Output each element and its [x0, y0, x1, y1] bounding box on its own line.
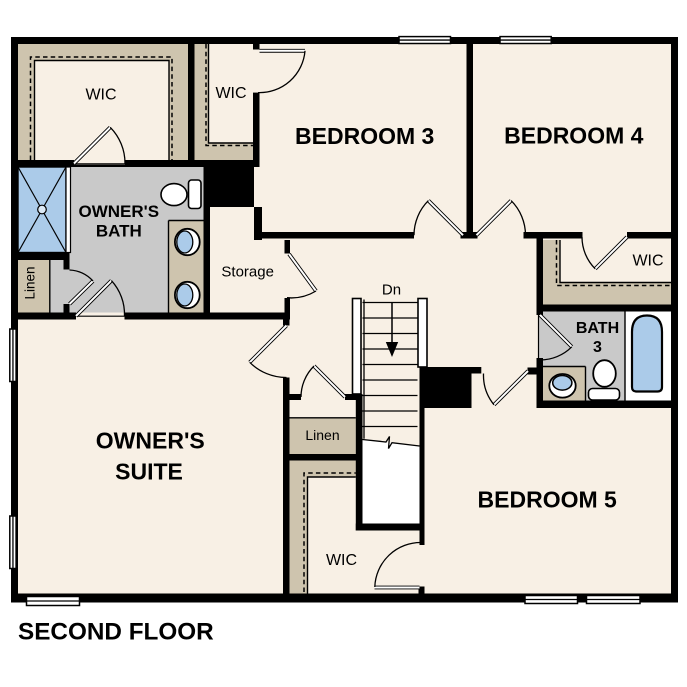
svg-text:Linen: Linen — [305, 427, 339, 443]
svg-text:BATH: BATH — [96, 221, 142, 240]
svg-text:OWNER'S: OWNER'S — [79, 202, 160, 221]
svg-text:BEDROOM 5: BEDROOM 5 — [478, 487, 618, 513]
svg-text:OWNER'S: OWNER'S — [96, 428, 205, 454]
svg-text:SUITE: SUITE — [115, 458, 183, 484]
svg-text:WIC: WIC — [215, 85, 246, 102]
svg-text:WIC: WIC — [632, 253, 663, 270]
svg-text:SECOND FLOOR: SECOND FLOOR — [18, 619, 214, 646]
svg-text:WIC: WIC — [326, 552, 357, 569]
svg-text:Storage: Storage — [221, 264, 274, 281]
svg-text:Dn: Dn — [382, 282, 401, 299]
svg-text:BATH: BATH — [576, 320, 619, 337]
svg-text:BEDROOM 3: BEDROOM 3 — [295, 123, 434, 149]
svg-text:BEDROOM 4: BEDROOM 4 — [504, 123, 644, 149]
svg-text:3: 3 — [593, 339, 602, 356]
svg-text:WIC: WIC — [85, 87, 116, 104]
svg-text:Linen: Linen — [23, 266, 38, 299]
